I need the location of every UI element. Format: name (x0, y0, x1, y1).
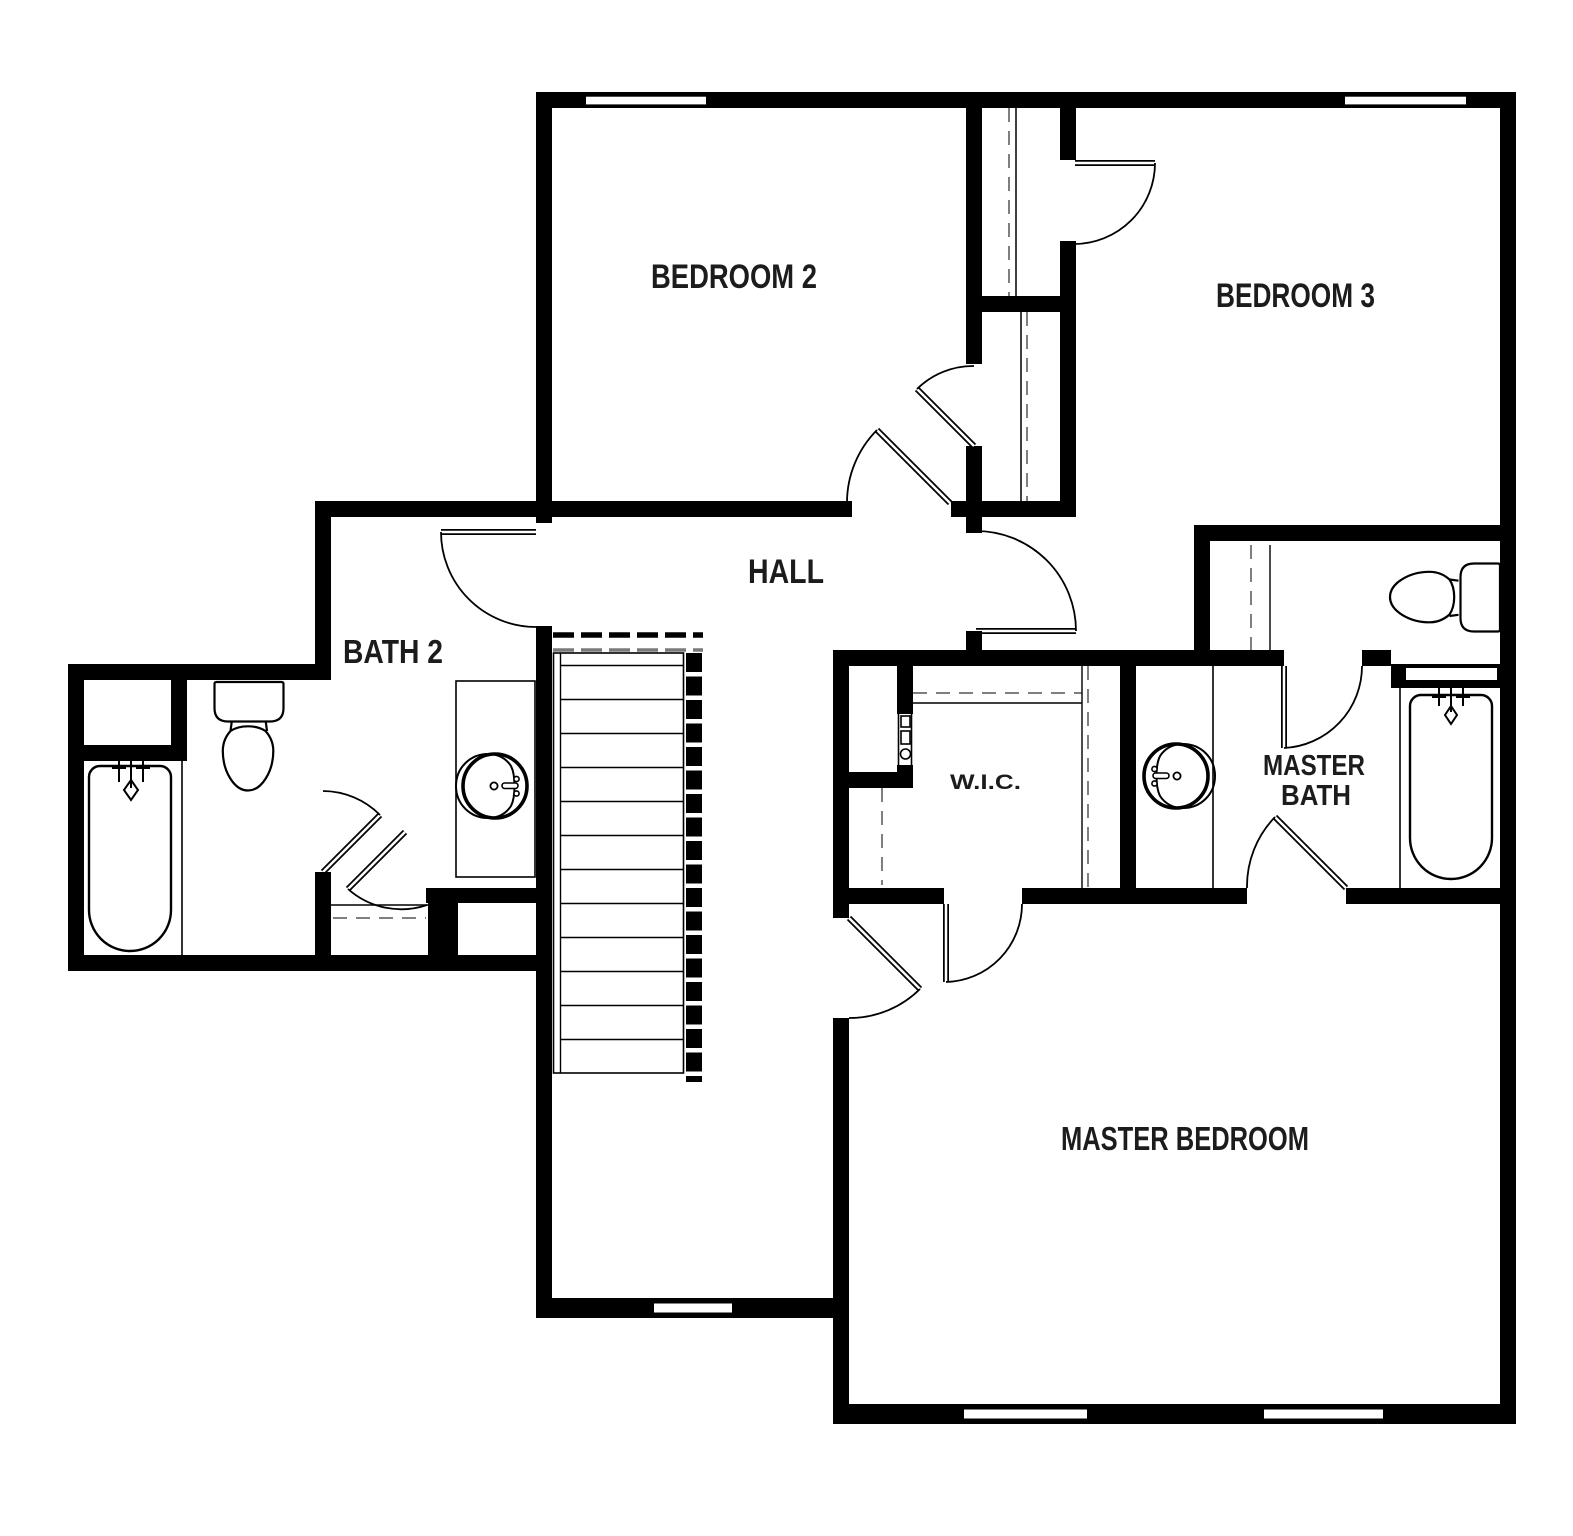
svg-text:BATH 2: BATH 2 (343, 633, 443, 670)
svg-text:W.I.C.: W.I.C. (950, 771, 1021, 794)
svg-text:BEDROOM 2: BEDROOM 2 (651, 258, 817, 296)
svg-text:MASTER: MASTER (1263, 750, 1365, 782)
svg-text:HALL: HALL (748, 553, 824, 591)
svg-text:BATH: BATH (1281, 780, 1351, 812)
svg-text:MASTER BEDROOM: MASTER BEDROOM (1061, 1120, 1309, 1157)
svg-text:BEDROOM 3: BEDROOM 3 (1216, 277, 1375, 315)
